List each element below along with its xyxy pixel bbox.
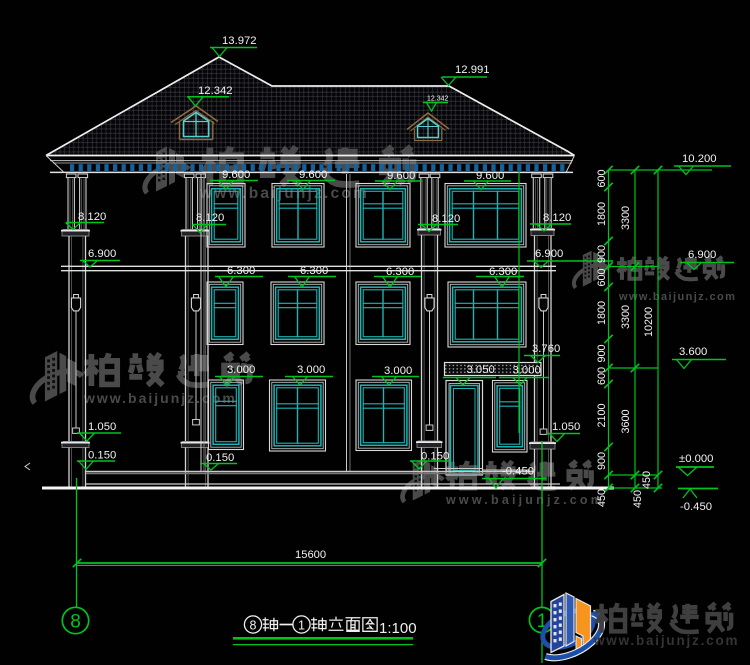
svg-text:900: 900 [596, 245, 608, 263]
svg-text:1:100: 1:100 [379, 620, 417, 637]
svg-text:8.120: 8.120 [432, 213, 460, 225]
svg-text:600: 600 [596, 367, 608, 385]
svg-text:6.300: 6.300 [227, 265, 255, 277]
svg-text:450: 450 [632, 490, 644, 508]
svg-text:1800: 1800 [596, 301, 608, 325]
svg-text:9.600: 9.600 [476, 170, 504, 182]
svg-text:600: 600 [596, 169, 608, 187]
svg-text:3.000: 3.000 [384, 365, 412, 377]
svg-text:9.600: 9.600 [387, 170, 415, 182]
svg-text:3.760: 3.760 [532, 343, 560, 355]
svg-text:0.150: 0.150 [88, 450, 116, 462]
svg-text:1.050: 1.050 [552, 421, 580, 433]
svg-text:10.200: 10.200 [682, 153, 717, 165]
svg-text:-0.450: -0.450 [680, 501, 712, 513]
svg-text:6.900: 6.900 [535, 248, 563, 260]
svg-text:450: 450 [596, 489, 608, 507]
svg-text:900: 900 [596, 344, 608, 362]
svg-text:8: 8 [250, 619, 257, 633]
svg-text:9.600: 9.600 [299, 169, 327, 181]
svg-text:8: 8 [70, 612, 81, 633]
svg-text:1.050: 1.050 [88, 421, 116, 433]
svg-text:15600: 15600 [295, 549, 326, 561]
svg-text:www.baijunjz.com: www.baijunjz.com [618, 291, 736, 303]
svg-text:www.baijunjz.com: www.baijunjz.com [593, 633, 739, 648]
svg-text:www.baijunjz.com: www.baijunjz.com [445, 493, 605, 507]
svg-text:600: 600 [596, 268, 608, 286]
svg-text:3.000: 3.000 [227, 364, 255, 376]
svg-text:2100: 2100 [596, 403, 608, 427]
svg-text:3600: 3600 [620, 409, 632, 433]
svg-text:6.900: 6.900 [688, 249, 716, 261]
svg-text:3300: 3300 [620, 305, 632, 329]
svg-text:8.120: 8.120 [78, 211, 106, 223]
svg-text:10200: 10200 [643, 307, 655, 337]
svg-text:6.300: 6.300 [300, 265, 328, 277]
svg-text:12.342: 12.342 [427, 96, 449, 103]
svg-text:1800: 1800 [596, 202, 608, 226]
svg-text:-0.450: -0.450 [502, 466, 534, 478]
svg-text:9.600: 9.600 [222, 169, 250, 181]
svg-text:3.000: 3.000 [513, 365, 541, 377]
svg-text:±0.000: ±0.000 [679, 453, 713, 465]
svg-text:8.120: 8.120 [196, 212, 224, 224]
svg-text:3300: 3300 [620, 206, 632, 230]
svg-text:8.120: 8.120 [543, 212, 571, 224]
svg-text:12.991: 12.991 [455, 64, 490, 76]
svg-text:3.600: 3.600 [679, 346, 707, 358]
svg-text:900: 900 [596, 452, 608, 470]
svg-text:12.342: 12.342 [198, 85, 233, 97]
svg-text:450: 450 [641, 471, 653, 489]
svg-text:6.900: 6.900 [88, 248, 116, 260]
svg-text:3.000: 3.000 [297, 364, 325, 376]
svg-text:1: 1 [298, 619, 305, 633]
svg-text:0.150: 0.150 [206, 452, 234, 464]
svg-text:3.050: 3.050 [467, 364, 495, 376]
svg-text:13.972: 13.972 [222, 35, 257, 47]
